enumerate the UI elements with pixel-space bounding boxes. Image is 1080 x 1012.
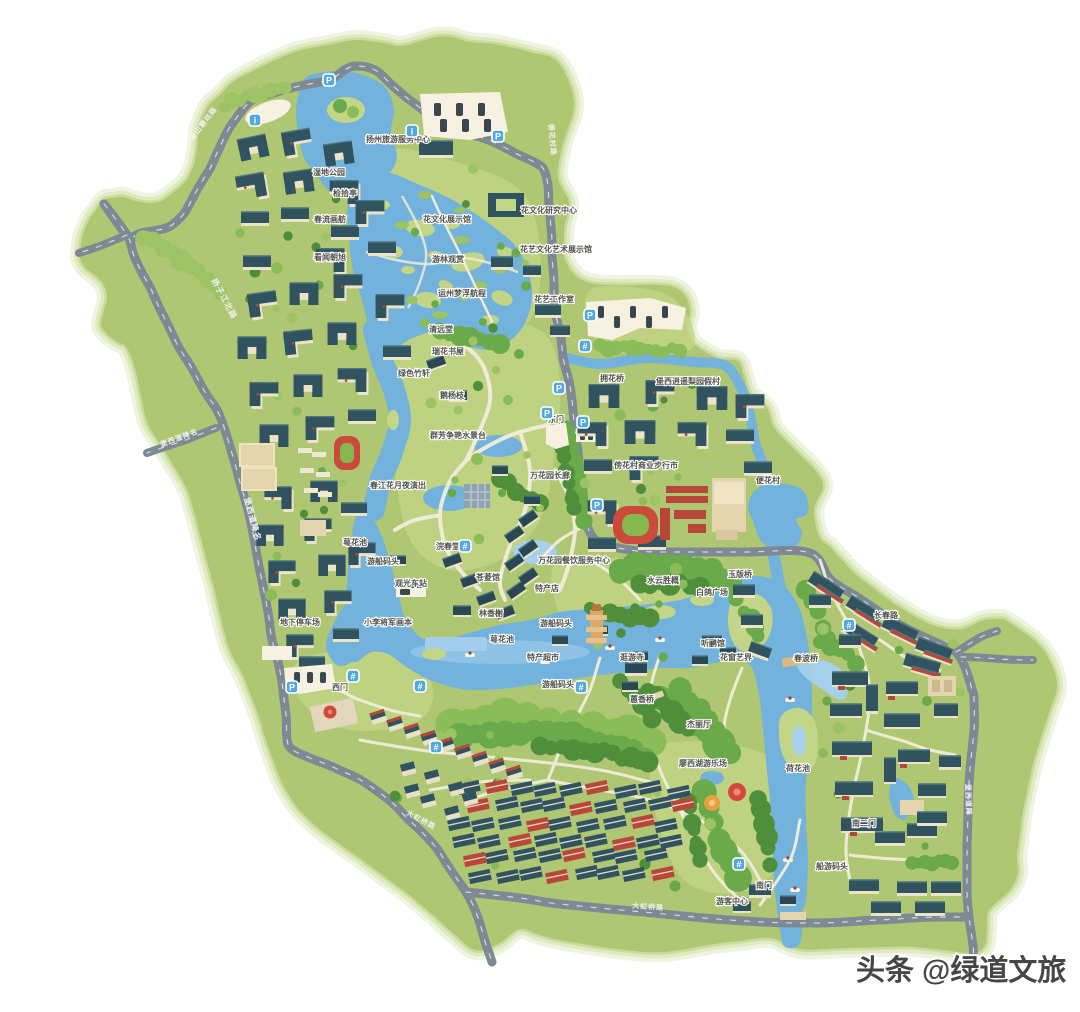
svg-text:万花园长廊: 万花园长廊 (529, 470, 570, 480)
svg-text:游船码头: 游船码头 (542, 679, 574, 689)
svg-text:#: # (736, 860, 741, 870)
svg-text:春流画舫: 春流画舫 (314, 214, 346, 224)
svg-text:玉版桥: 玉版桥 (728, 569, 753, 579)
svg-text:南二门: 南二门 (852, 818, 876, 828)
svg-text:湿地公园: 湿地公园 (313, 167, 345, 177)
svg-text:特产超市: 特产超市 (527, 652, 559, 662)
svg-text:拥花桥: 拥花桥 (600, 373, 625, 383)
svg-text:小李将军画本: 小李将军画本 (363, 617, 412, 627)
svg-text:地下停车场: 地下停车场 (280, 617, 320, 627)
svg-text:花文化研究中心: 花文化研究中心 (521, 205, 577, 215)
svg-text:林香榭: 林香榭 (479, 608, 503, 618)
svg-text:游客中心: 游客中心 (716, 896, 748, 906)
svg-text:i: i (411, 127, 414, 137)
svg-text:廖西湖游乐场: 廖西湖游乐场 (679, 758, 727, 768)
svg-text:P: P (495, 132, 501, 142)
svg-text:群芳争艳水景台: 群芳争艳水景台 (429, 430, 486, 440)
svg-text:瑞花书屋: 瑞花书屋 (432, 346, 464, 356)
svg-text:春波桥: 春波桥 (794, 653, 819, 663)
svg-text:水云胜概: 水云胜概 (646, 575, 679, 585)
svg-text:游船码头: 游船码头 (540, 618, 572, 628)
svg-text:#: # (417, 682, 422, 692)
svg-text:堡西逍遥梨园假村: 堡西逍遥梨园假村 (656, 376, 720, 386)
svg-text:花文化展示馆: 花文化展示馆 (423, 214, 471, 224)
svg-text:绿色竹轩: 绿色竹轩 (398, 368, 430, 378)
svg-text:游林观赏: 游林观赏 (432, 254, 464, 264)
svg-text:#: # (462, 542, 467, 552)
svg-text:春江花月夜演出: 春江花月夜演出 (370, 480, 426, 490)
svg-text:P: P (326, 76, 332, 86)
svg-text:P: P (580, 418, 586, 428)
svg-text:P: P (594, 501, 600, 511)
svg-text:#: # (433, 743, 438, 753)
svg-text:观光车站: 观光车站 (395, 578, 427, 588)
svg-text:#: # (350, 672, 355, 682)
svg-text:头条 @绿道文旅: 头条 @绿道文旅 (856, 953, 1066, 987)
svg-text:苍菱馆: 苍菱馆 (475, 572, 500, 582)
svg-text:便花村: 便花村 (756, 475, 780, 485)
svg-text:白鸽广场: 白鸽广场 (696, 587, 728, 597)
svg-text:萼花池: 萼花池 (343, 537, 367, 547)
svg-text:长春路: 长春路 (874, 610, 899, 620)
svg-text:听鹂馆: 听鹂馆 (701, 638, 725, 648)
svg-text:花艺文化艺术展示馆: 花艺文化艺术展示馆 (520, 244, 592, 254)
svg-text:特产店: 特产店 (535, 583, 559, 593)
svg-text:P: P (556, 384, 562, 394)
svg-text:逛游寺: 逛游寺 (620, 652, 644, 662)
svg-text:万花园餐饮服务中心: 万花园餐饮服务中心 (537, 555, 610, 565)
svg-text:清远堂: 清远堂 (429, 324, 453, 334)
svg-text:萼花池: 萼花池 (490, 634, 514, 644)
svg-text:花艺工作室: 花艺工作室 (534, 294, 574, 304)
svg-text:#: # (578, 683, 583, 693)
svg-text:花窗艺界: 花窗艺界 (720, 652, 753, 662)
svg-text:#: # (846, 621, 851, 631)
svg-text:#: # (582, 342, 587, 352)
svg-text:鹅杨枝: 鹅杨枝 (440, 390, 465, 400)
svg-text:P: P (289, 683, 295, 693)
svg-text:i: i (254, 116, 257, 126)
svg-text:船游码头: 船游码头 (816, 861, 848, 871)
svg-text:荷花池: 荷花池 (785, 763, 810, 773)
svg-text:西门: 西门 (332, 682, 348, 692)
svg-text:检拾亭: 检拾亭 (333, 188, 357, 198)
svg-text:杰丽厅: 杰丽厅 (687, 719, 711, 729)
svg-text:P: P (587, 311, 593, 321)
svg-text:傍花村商业步行市: 傍花村商业步行市 (614, 460, 678, 470)
svg-text:游船码头: 游船码头 (367, 556, 399, 566)
svg-text:蕙香桥: 蕙香桥 (630, 694, 655, 704)
svg-text:浣春堂: 浣春堂 (436, 541, 460, 551)
svg-text:看闻朝旭: 看闻朝旭 (313, 252, 346, 262)
svg-text:P: P (544, 409, 550, 419)
svg-text:南门: 南门 (756, 880, 772, 890)
svg-text:扬州旅游服务中心: 扬州旅游服务中心 (366, 134, 430, 144)
svg-text:运州梦浮航程: 运州梦浮航程 (438, 288, 486, 298)
